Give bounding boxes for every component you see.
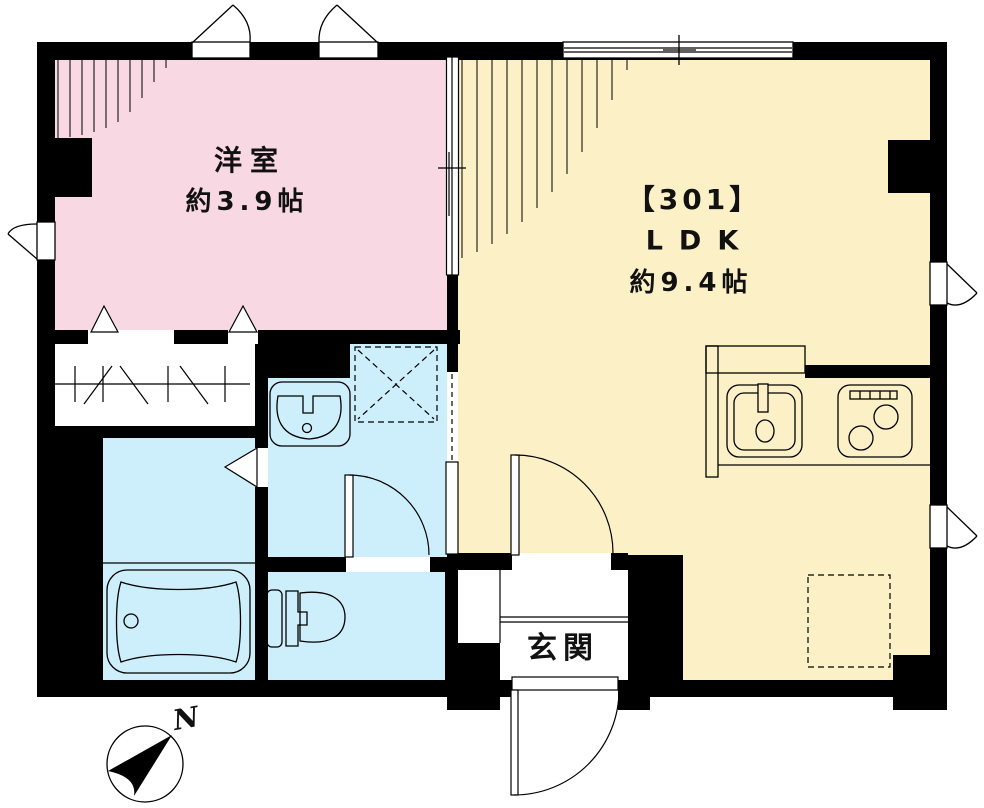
partition-track bbox=[446, 57, 459, 275]
wall-kitchen-stub bbox=[805, 365, 930, 378]
wall-top bbox=[37, 42, 947, 60]
compass-north-label: N bbox=[171, 703, 201, 735]
wall-wash-ldk-lower bbox=[447, 554, 458, 572]
wall-washroom-north bbox=[262, 344, 350, 378]
wall-closet-south bbox=[49, 426, 268, 438]
wall-entry-column bbox=[628, 555, 683, 680]
western-room-area: 約3.9帖 bbox=[185, 189, 308, 215]
wall-entry-stub-r bbox=[618, 680, 650, 710]
wall-entry-north-l bbox=[458, 553, 512, 570]
wall-corner-se bbox=[893, 655, 947, 710]
wall-pillar-left bbox=[55, 138, 92, 197]
ldk-room-name: LDK bbox=[646, 228, 755, 255]
wall-wash-ldk-upper bbox=[447, 330, 458, 372]
wall-western-south bbox=[37, 330, 460, 344]
wall-right bbox=[930, 42, 947, 697]
ldk-room-area: 約9.4帖 bbox=[629, 270, 752, 296]
entrance-name: 玄関 bbox=[527, 634, 599, 664]
wall-entry-block bbox=[458, 643, 500, 680]
western-room-name: 洋室 bbox=[214, 147, 286, 175]
wall-bottom-left bbox=[37, 680, 512, 697]
wall-bath-west bbox=[37, 438, 103, 680]
wall-entry-north-r bbox=[611, 553, 628, 570]
wall-toilet-east bbox=[445, 572, 458, 680]
compass-icon bbox=[107, 726, 183, 802]
wall-right-stub bbox=[888, 140, 930, 193]
wall-wash-toilet bbox=[262, 557, 447, 572]
wall-entry-stub-l bbox=[447, 680, 500, 710]
front-door-icon bbox=[511, 677, 619, 795]
wall-partition-low bbox=[447, 275, 458, 332]
ldk-unit-number: 【301】 bbox=[627, 186, 761, 214]
toilet-room-floor bbox=[268, 572, 445, 680]
bathroom-floor bbox=[103, 438, 255, 680]
closet-floor bbox=[49, 344, 255, 426]
washroom-pocket-door-icon bbox=[446, 374, 458, 554]
floor-plan: 洋室 約3.9帖 【301】 LDK 約9.4帖 玄関 N bbox=[0, 0, 984, 808]
wall-bath-east bbox=[255, 330, 268, 680]
